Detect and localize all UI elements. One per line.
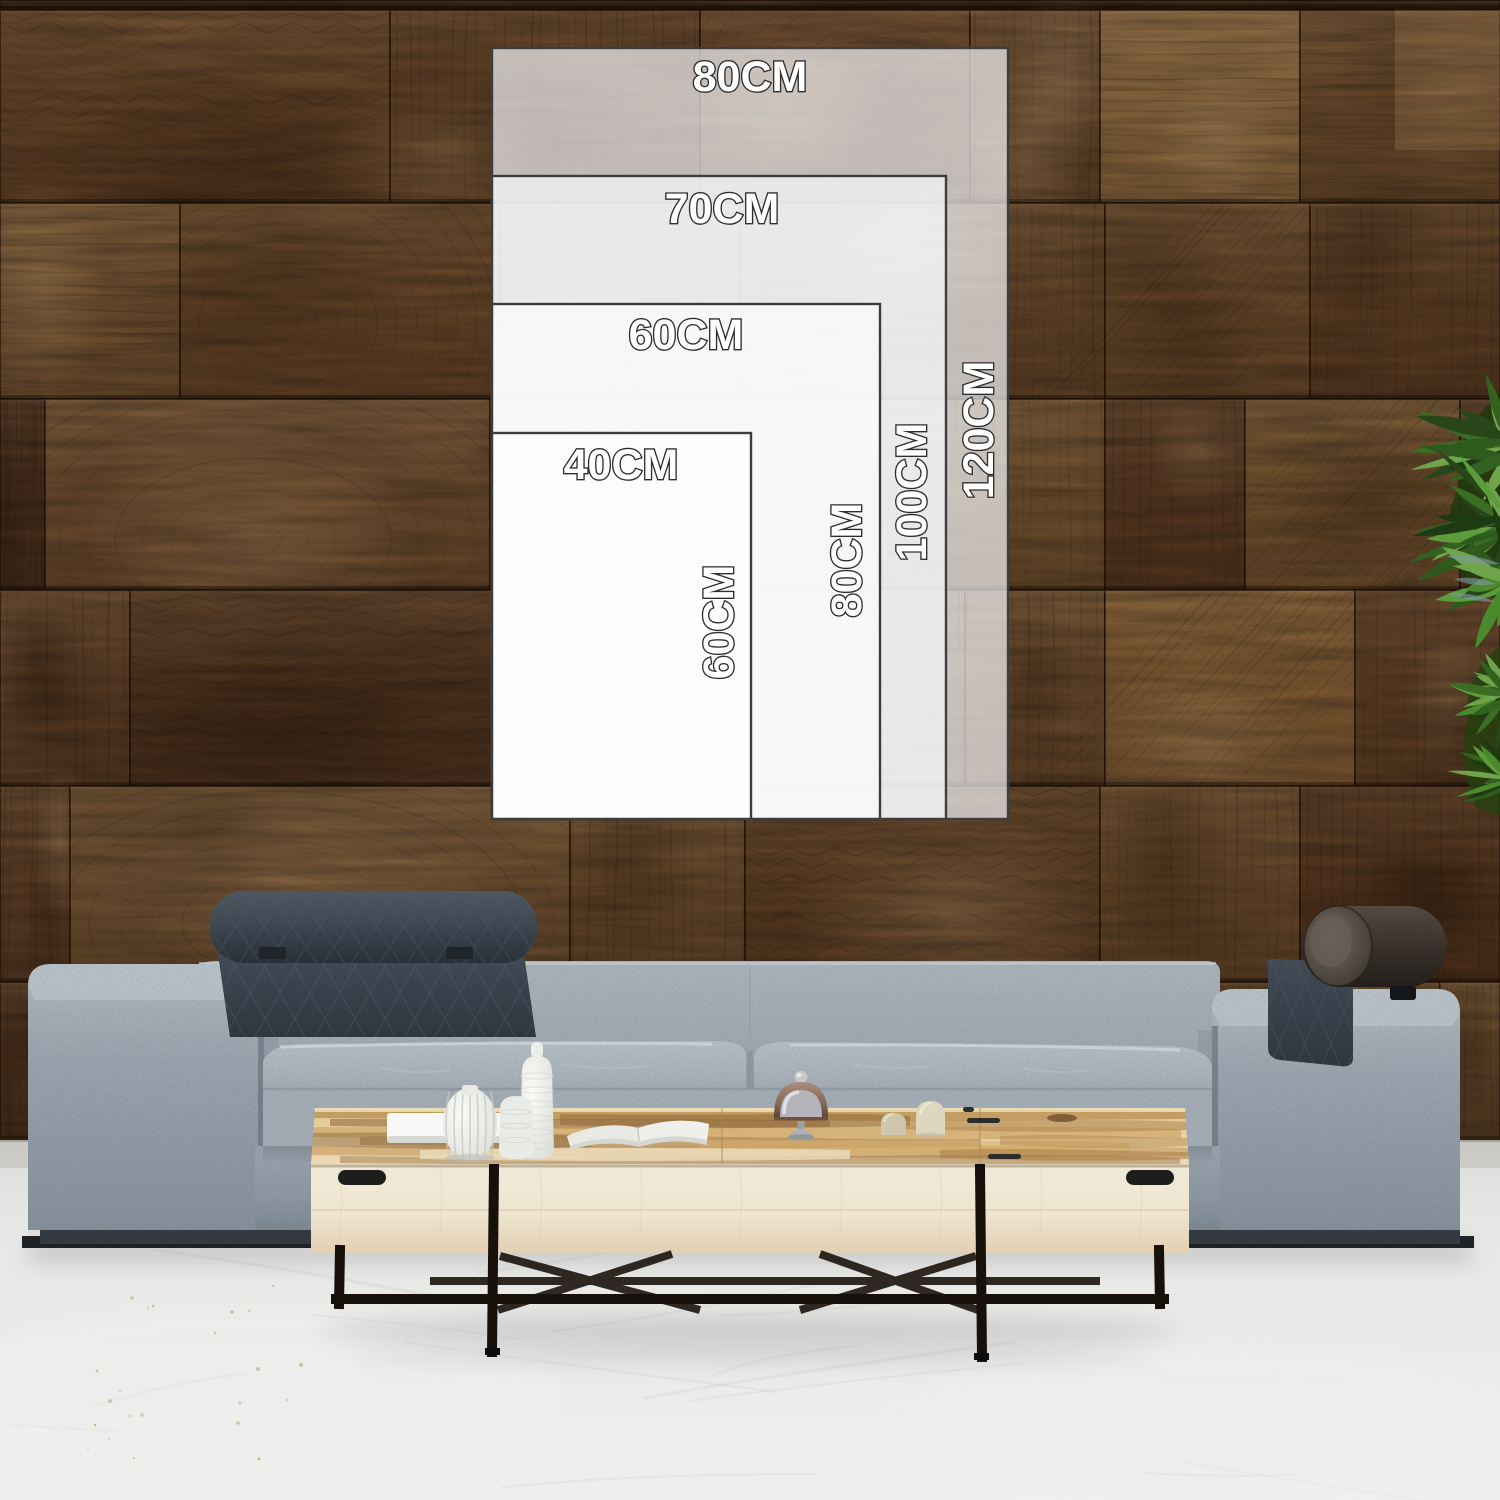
svg-text:40CM: 40CM [564, 441, 679, 489]
svg-text:70CM: 70CM [665, 185, 780, 233]
svg-text:80CM: 80CM [823, 503, 871, 618]
svg-text:120CM: 120CM [955, 361, 1003, 500]
svg-text:80CM: 80CM [693, 53, 808, 101]
svg-text:60CM: 60CM [629, 311, 744, 359]
svg-text:100CM: 100CM [888, 423, 936, 562]
svg-text:60CM: 60CM [695, 565, 743, 680]
